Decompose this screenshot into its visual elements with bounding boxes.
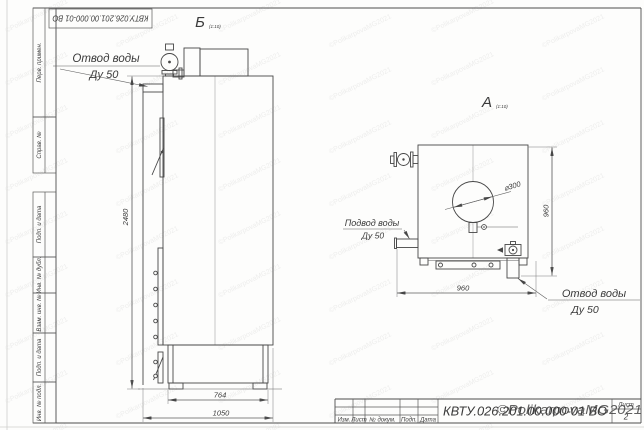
top-designation-box: КВТУ.026.201.00.000-01 ВО bbox=[49, 9, 152, 28]
margin-field-label: Перв. примен. bbox=[37, 43, 43, 83]
foot bbox=[169, 383, 183, 389]
side-outlet-callout: Отвод воды Ду 50 bbox=[53, 53, 160, 87]
watermark-text: ©PolikarpovaMG2021 bbox=[497, 403, 642, 417]
front-view-label: А bbox=[481, 94, 492, 111]
dim-height: 2480 bbox=[121, 208, 130, 227]
outlet-valve bbox=[161, 44, 184, 79]
front-view-scale: (1:10) bbox=[496, 104, 508, 109]
dim-total-width: 1050 bbox=[213, 409, 231, 418]
callout-text: Отвод воды bbox=[72, 53, 140, 65]
tb-col-dokum: № докум. bbox=[369, 417, 395, 424]
valve-stem bbox=[166, 44, 174, 50]
callout-text: Отвод воды bbox=[562, 288, 626, 300]
callout-text: Ду 50 bbox=[570, 304, 599, 316]
foot bbox=[420, 258, 428, 265]
base-plinth bbox=[168, 345, 268, 389]
tb-col-izm: Изм. bbox=[338, 418, 351, 424]
tb-col-podp: Подп. bbox=[401, 418, 417, 424]
leader-line bbox=[404, 230, 410, 239]
dim-width: 960 bbox=[457, 284, 470, 293]
callout-text: Ду 50 bbox=[361, 231, 384, 241]
margin-field-label: Справ. № bbox=[36, 131, 43, 159]
side-view: Б (1:10) bbox=[53, 14, 282, 422]
dim-height: 960 bbox=[542, 204, 551, 217]
side-view-scale: (1:10) bbox=[209, 24, 221, 29]
drawing-canvas: Перв. примен. Справ. № Подп. и дата Инв.… bbox=[0, 0, 644, 430]
outlet-valve-front bbox=[497, 242, 521, 279]
foot bbox=[519, 258, 527, 265]
side-view-dimensions: 2480 764 1050 bbox=[121, 76, 273, 422]
outlet-bracket bbox=[143, 84, 163, 92]
left-margin-fields: Перв. примен. Справ. № Подп. и дата Инв.… bbox=[33, 8, 56, 423]
margin-field-label: Взам. инв. № bbox=[36, 294, 43, 332]
ash-door bbox=[154, 352, 164, 383]
dim-diameter: ⌀300 bbox=[503, 179, 523, 193]
margin-field-label: Инв. № дубл. bbox=[36, 257, 43, 294]
drain-fitting bbox=[469, 223, 518, 233]
front-outlet-callout: Отвод воды Ду 50 bbox=[518, 279, 640, 317]
foot bbox=[253, 383, 267, 389]
margin-field-label: Подп. и дата bbox=[37, 338, 43, 376]
top-pipe-valve bbox=[391, 152, 419, 167]
top-designation-text: КВТУ.026.201.00.000-01 ВО bbox=[52, 14, 148, 24]
margin-field-label: Подп. и дата bbox=[37, 205, 43, 243]
dim-base-width: 764 bbox=[214, 391, 227, 400]
loading-door bbox=[154, 248, 163, 345]
boiler-body-side bbox=[163, 76, 273, 345]
front-base bbox=[420, 258, 527, 269]
margin-field-label: Инв. № подл. bbox=[36, 384, 43, 421]
tb-col-data: Дата bbox=[419, 418, 436, 424]
outlet-down-pipe bbox=[507, 258, 519, 278]
front-view: А (1:10) ⌀300 bbox=[343, 94, 640, 316]
tb-col-list: Лист bbox=[350, 418, 366, 424]
inlet-pipe bbox=[397, 239, 419, 248]
callout-text: Ду 50 bbox=[88, 69, 120, 81]
front-inlet-callout: Подвод воды Ду 50 bbox=[343, 218, 410, 241]
callout-text: Подвод воды bbox=[345, 218, 400, 228]
leader-line bbox=[518, 279, 547, 300]
chimney bbox=[184, 48, 248, 76]
drawing-sheet: ©PolikarpovaMG2021©PolikarpovaMG2021©Pol… bbox=[0, 0, 644, 430]
side-view-label: Б bbox=[195, 14, 205, 31]
